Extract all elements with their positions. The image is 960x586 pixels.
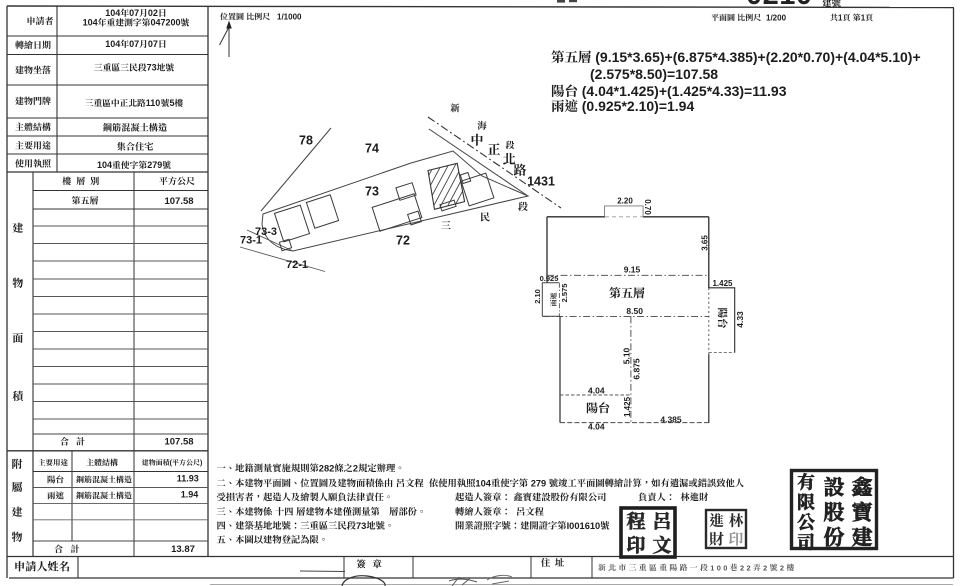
svg-text:07: 07	[148, 39, 158, 49]
svg-text:3.65: 3.65	[700, 235, 709, 251]
svg-text:104: 104	[83, 18, 98, 28]
svg-text:I001610: I001610	[567, 521, 601, 531]
svg-text:2: 2	[763, 563, 770, 572]
svg-text:07: 07	[129, 39, 139, 49]
svg-text:): )	[200, 460, 202, 467]
svg-text:1.425: 1.425	[623, 396, 632, 417]
svg-text:73-1: 73-1	[240, 235, 262, 247]
svg-text:73: 73	[147, 63, 157, 73]
svg-text:0.70: 0.70	[643, 199, 652, 215]
svg-text:2: 2	[353, 463, 358, 473]
svg-text:07: 07	[129, 8, 139, 18]
svg-text:(9.15*3.65)+(6.875*4.385)+(2.2: (9.15*3.65)+(6.875*4.385)+(2.20*0.70)+(4…	[595, 49, 920, 65]
svg-text:78: 78	[299, 134, 313, 148]
svg-text:6.875: 6.875	[632, 358, 642, 380]
svg-text:9.15: 9.15	[624, 265, 641, 275]
svg-text:1: 1	[861, 13, 866, 22]
svg-text:0210: 0210	[746, 0, 813, 11]
svg-text:4.33: 4.33	[735, 311, 745, 328]
svg-text:(0.925*2.10)=1.94: (0.925*2.10)=1.94	[582, 98, 695, 114]
svg-text:(2.575*8.50)=107.58: (2.575*8.50)=107.58	[590, 66, 718, 82]
svg-text:(4.04*1.425)+(1.425*4.33)=11.9: (4.04*1.425)+(1.425*4.33)=11.93	[582, 83, 787, 99]
svg-text:13.87: 13.87	[171, 544, 195, 555]
svg-text:1: 1	[838, 13, 843, 22]
svg-text:1431: 1431	[527, 175, 555, 189]
svg-text:110: 110	[146, 98, 161, 108]
svg-text:100: 100	[710, 563, 730, 572]
svg-text:279: 279	[531, 478, 547, 488]
svg-text:72: 72	[396, 234, 410, 248]
svg-text:104: 104	[105, 8, 120, 18]
svg-text:5: 5	[169, 98, 174, 108]
svg-text:2.10: 2.10	[533, 289, 542, 304]
svg-text:72-1: 72-1	[286, 259, 308, 271]
svg-text:02: 02	[148, 8, 158, 18]
svg-text:74: 74	[365, 142, 379, 156]
svg-text:047200: 047200	[150, 18, 180, 28]
svg-text:107.58: 107.58	[164, 436, 193, 447]
svg-text:1/200: 1/200	[766, 14, 787, 23]
svg-text:0.925: 0.925	[540, 274, 559, 283]
svg-text:107.58: 107.58	[164, 196, 193, 207]
svg-text:104: 104	[97, 160, 112, 170]
svg-text:1.425: 1.425	[712, 279, 733, 288]
svg-text:73: 73	[365, 185, 379, 199]
svg-text:73: 73	[356, 521, 366, 531]
svg-text:104: 104	[105, 39, 120, 49]
svg-text:8.50: 8.50	[626, 306, 643, 316]
svg-text:104: 104	[475, 478, 491, 488]
svg-text:1/1000: 1/1000	[277, 13, 302, 22]
svg-text:2: 2	[780, 563, 787, 572]
svg-text:22: 22	[740, 563, 753, 572]
svg-text:5.10: 5.10	[622, 347, 632, 364]
svg-text:279: 279	[147, 160, 162, 170]
svg-text:282: 282	[319, 463, 335, 473]
svg-text:4.385: 4.385	[660, 415, 682, 425]
svg-text:4.04: 4.04	[588, 386, 605, 396]
svg-text:2.575: 2.575	[560, 284, 569, 303]
svg-text:11.93: 11.93	[177, 474, 199, 484]
svg-text:1.94: 1.94	[181, 490, 199, 500]
svg-text:4.04: 4.04	[588, 422, 605, 432]
svg-text:2.20: 2.20	[617, 196, 633, 205]
